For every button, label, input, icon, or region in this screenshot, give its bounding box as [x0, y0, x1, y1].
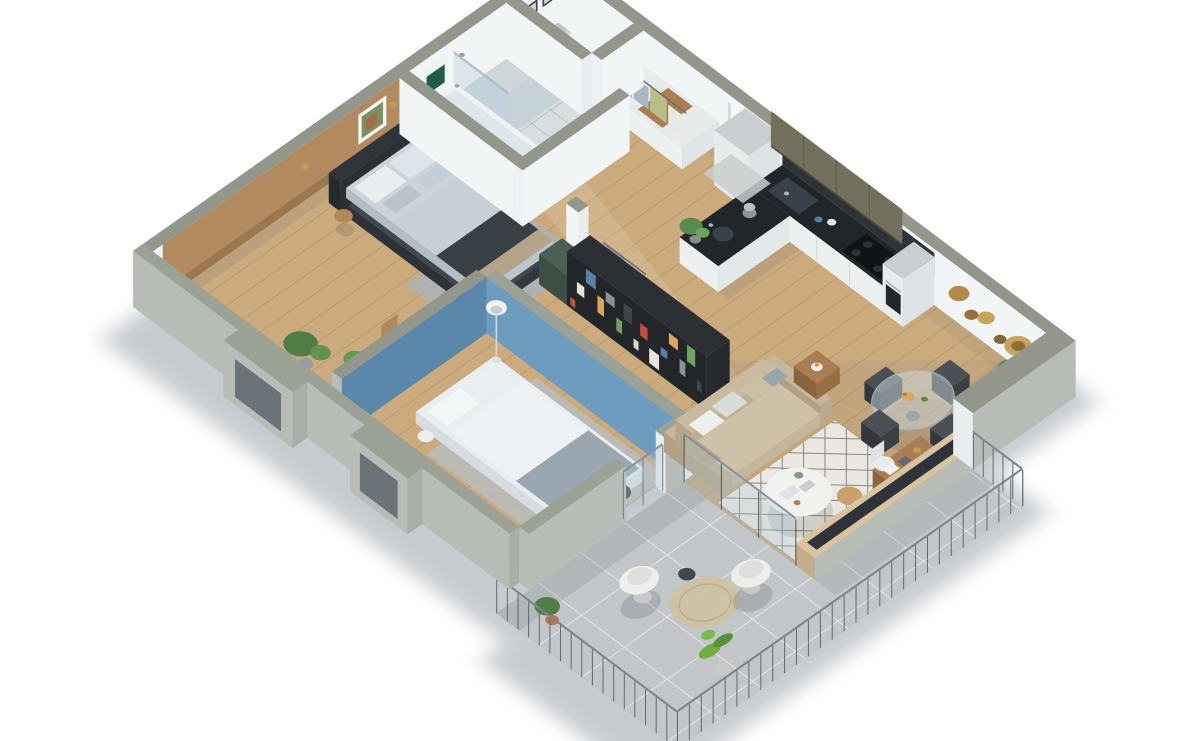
- apartment-world: [30, 0, 1182, 741]
- floorplan-3d-render: [0, 0, 1193, 741]
- isometric-scene: [0, 0, 1193, 741]
